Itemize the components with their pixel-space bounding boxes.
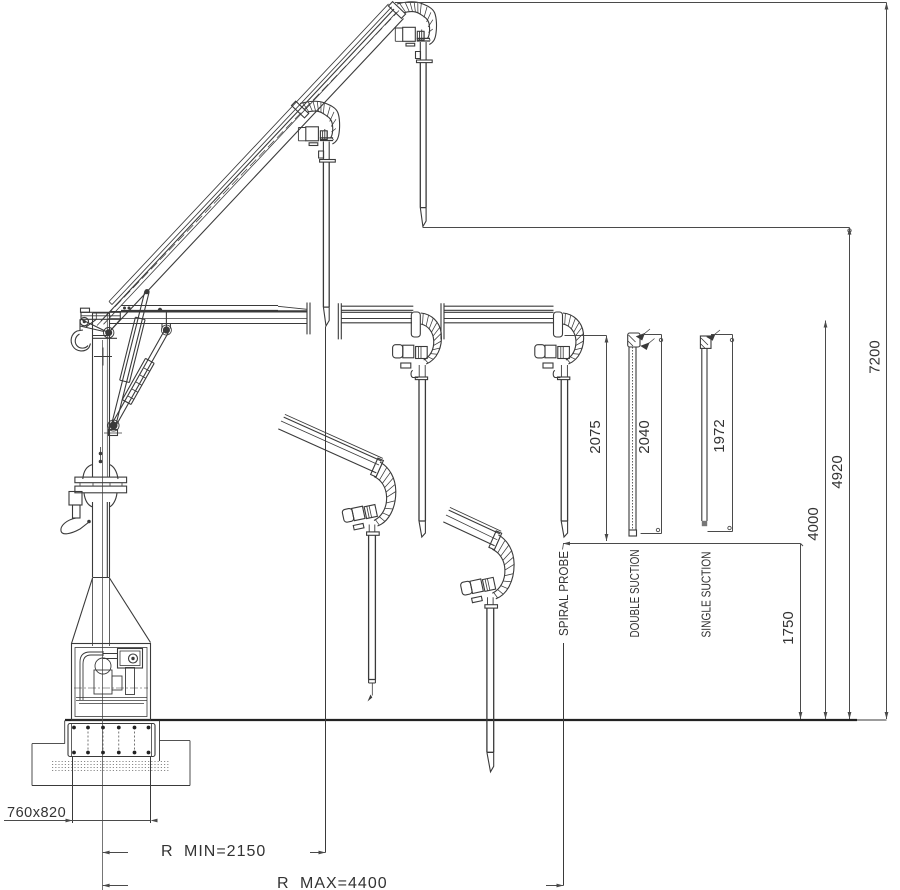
svg-text:DOUBLE SUCTION: DOUBLE SUCTION [627,550,642,638]
svg-text:SINGLE SUCTION: SINGLE SUCTION [699,552,714,638]
svg-text:4000: 4000 [805,507,822,540]
svg-text:4920: 4920 [829,455,846,488]
svg-text:1972: 1972 [711,419,728,452]
svg-text:1750: 1750 [780,611,797,644]
svg-text:2040: 2040 [636,420,653,453]
svg-text:R MIN=2150: R MIN=2150 [161,843,266,860]
svg-text:760x820: 760x820 [7,805,66,821]
svg-text:SPIRAL PROBE: SPIRAL PROBE [556,551,571,636]
svg-text:R MAX=4400: R MAX=4400 [277,875,388,890]
svg-text:7200: 7200 [867,340,884,373]
svg-text:2075: 2075 [587,420,604,453]
